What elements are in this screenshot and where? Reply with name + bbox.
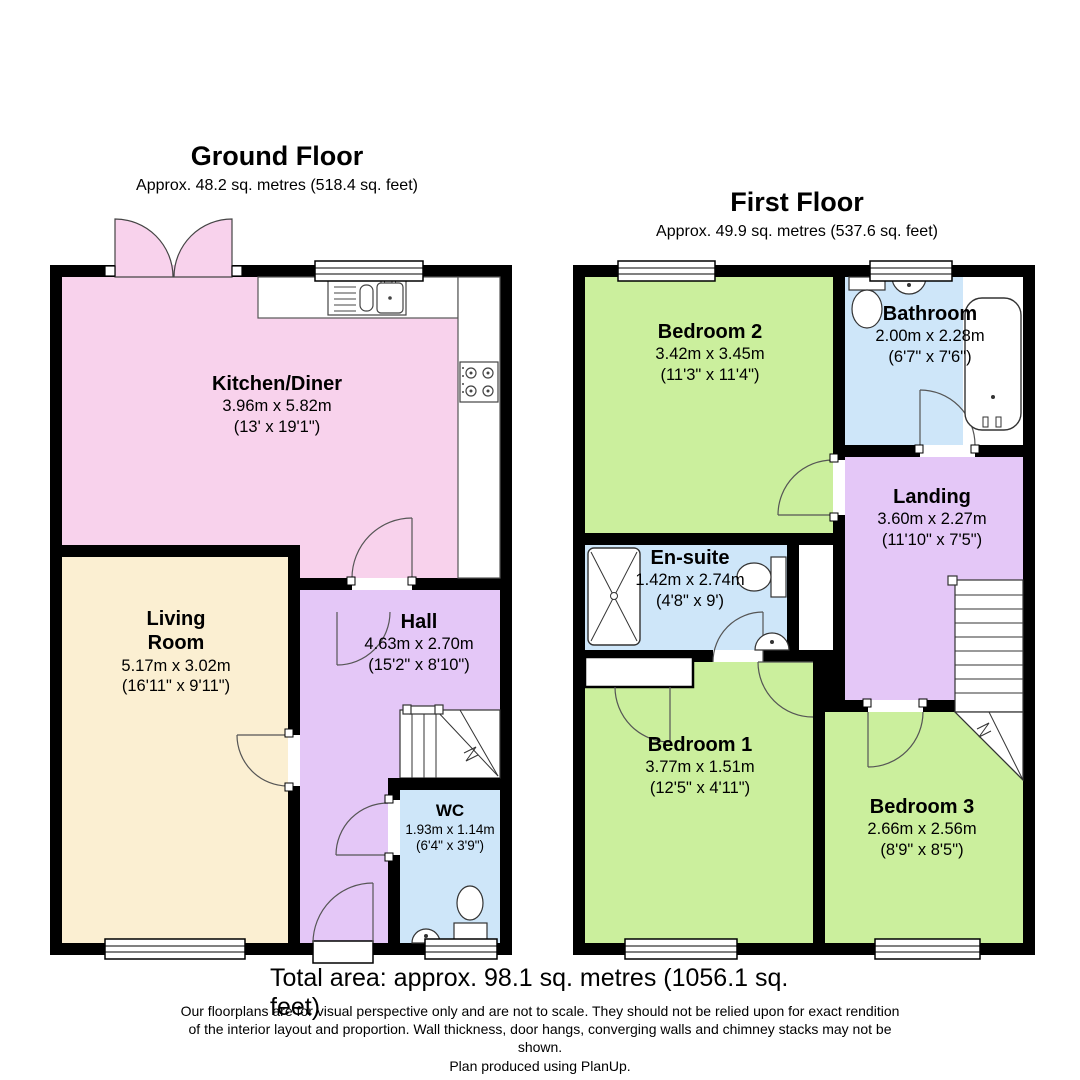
kitchen-window xyxy=(315,261,423,281)
bedroom1-room xyxy=(585,662,813,943)
stairs xyxy=(400,705,500,778)
label-bedroom2: Bedroom 2 3.42m x 3.45m (11'3" x 11'4") xyxy=(655,320,764,385)
label-ensuite: En-suite 1.42m x 2.74m (4'8" x 9') xyxy=(635,546,744,611)
disclaimer: Our floorplans are for visual perspectiv… xyxy=(178,1002,902,1075)
label-bedroom1: Bedroom 1 3.77m x 1.51m (12'5" x 4'11") xyxy=(645,733,754,798)
label-wc: WC 1.93m x 1.14m (6'4" x 3'9") xyxy=(405,801,494,855)
entrance-double-door xyxy=(105,219,242,277)
label-bathroom: Bathroom 2.00m x 2.28m (6'7" x 7'6") xyxy=(875,302,984,367)
bedroom2-room xyxy=(585,277,833,533)
bedroom1-window xyxy=(625,939,737,959)
ground-floor-title: Ground Floor Approx. 48.2 sq. metres (51… xyxy=(136,142,418,195)
label-living-room: Living Room 5.17m x 3.02m (16'11" x 9'11… xyxy=(116,607,236,696)
bedroom3-window xyxy=(875,939,980,959)
label-hall: Hall 4.63m x 2.70m (15'2" x 8'10") xyxy=(364,610,473,675)
wc-window xyxy=(425,939,497,959)
credit-text: Plan produced using PlanUp. xyxy=(178,1057,902,1075)
bathroom-window xyxy=(870,261,952,281)
floorplan-page: Ground Floor Approx. 48.2 sq. metres (51… xyxy=(0,0,1080,1080)
ground-floor-title-text: Ground Floor xyxy=(136,142,418,172)
label-kitchen-diner: Kitchen/Diner 3.96m x 5.82m (13' x 19'1"… xyxy=(212,372,342,437)
ground-floor-area-text: Approx. 48.2 sq. metres (518.4 sq. feet) xyxy=(136,177,418,195)
bedroom2-window xyxy=(618,261,715,281)
ground-floor-plan xyxy=(40,205,522,975)
cupboard xyxy=(799,545,833,650)
disclaimer-text: Our floorplans are for visual perspectiv… xyxy=(178,1002,902,1057)
stove-hob xyxy=(460,362,498,402)
label-landing: Landing 3.60m x 2.27m (11'10" x 7'5") xyxy=(877,485,986,550)
shower xyxy=(588,548,640,645)
label-bedroom3: Bedroom 3 2.66m x 2.56m (8'9" x 8'5") xyxy=(867,795,976,860)
living-room-window xyxy=(105,939,245,959)
